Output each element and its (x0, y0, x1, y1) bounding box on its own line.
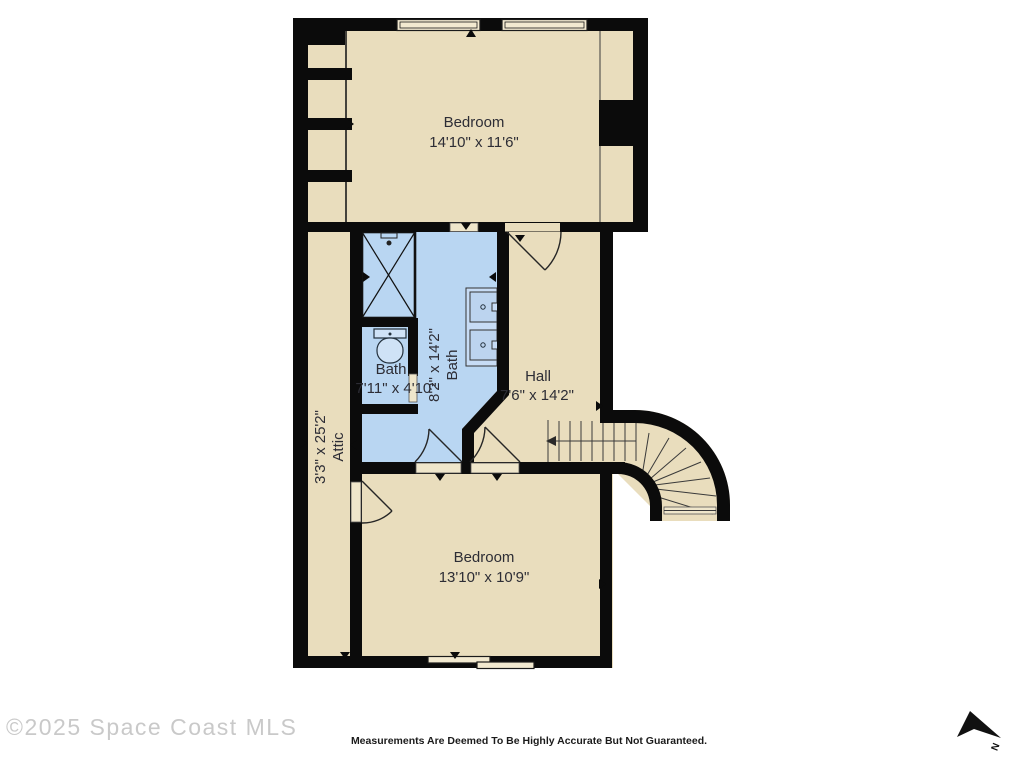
opening-bath-to-bedroom (416, 463, 461, 473)
north-arrow-icon: N (957, 711, 1001, 752)
opening-hall-to-bedroom (471, 463, 519, 473)
opening-bedroom-to-hall (505, 223, 560, 232)
chimney (599, 100, 648, 146)
watermark: ©2025 Space Coast MLS (6, 714, 297, 741)
hall-dims: 7'6" x 14'2" (500, 387, 574, 404)
closet-stub-wall (308, 118, 352, 130)
bath-small-name: Bath (376, 361, 407, 378)
window-top-right (502, 20, 587, 31)
window-top-left (397, 20, 480, 31)
attic-name: Attic (330, 432, 347, 462)
bedroom-bottom-name: Bedroom (454, 549, 515, 566)
bedroom-top-name: Bedroom (444, 114, 505, 131)
bedroom-top-dims: 14'10" x 11'6" (429, 134, 519, 151)
floorplan-page: Bedroom 14'10" x 11'6" Bath 8'2" x 14'2"… (0, 0, 1024, 768)
bath-small-dims: 7'11" x 4'10" (355, 380, 436, 397)
opening-attic-to-bedroom (351, 482, 361, 522)
closet-stub-wall (308, 170, 352, 182)
north-label: N (988, 741, 1001, 752)
bedroom-bottom-dims: 13'10" x 10'9" (439, 569, 530, 586)
sink-icon (466, 288, 498, 366)
disclaimer: Measurements Are Deemed To Be Highly Acc… (351, 735, 707, 747)
hall-name: Hall (525, 368, 551, 385)
toilet-icon (374, 329, 406, 363)
closet-stub-wall (308, 68, 352, 80)
attic-dims: 3'3" x 25'2" (312, 410, 329, 484)
floorplan-svg: Bedroom 14'10" x 11'6" Bath 8'2" x 14'2"… (0, 0, 1024, 768)
bath-main-name: Bath (444, 350, 461, 381)
